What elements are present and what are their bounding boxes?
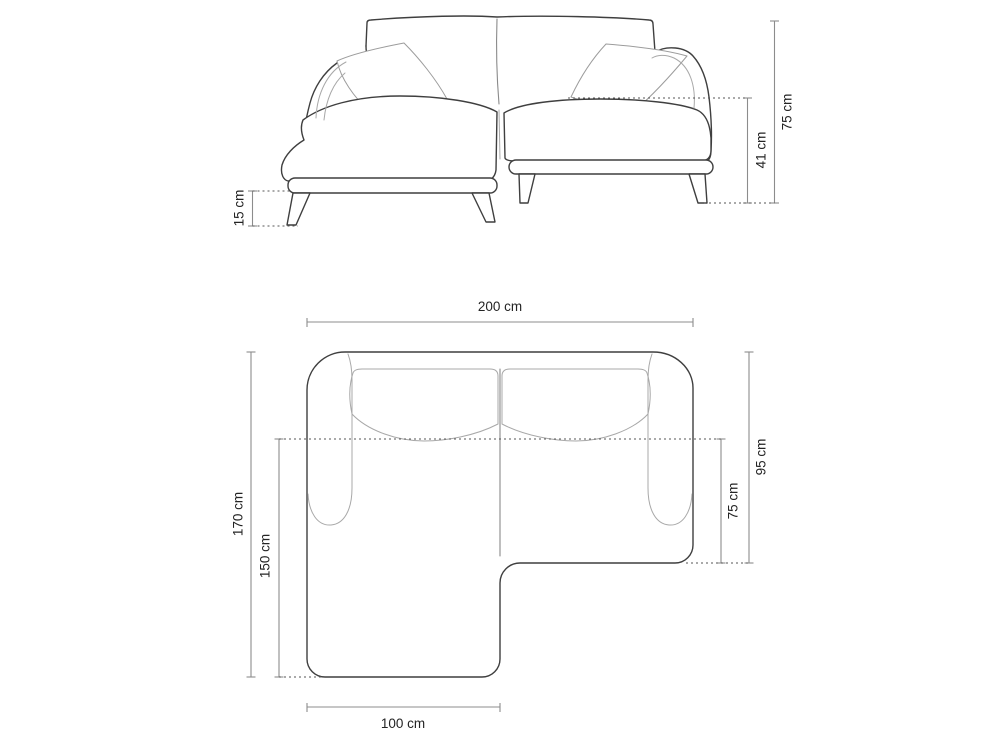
diagram-canvas: 75 cm 41 cm 15 cm 200 cm 100 cm <box>0 0 1000 750</box>
dim-label-right-depth: 95 cm <box>754 439 769 476</box>
dim-label-total-height: 75 cm <box>780 94 795 131</box>
chaise-seat-cushion <box>281 96 497 182</box>
dim-label-leg-height: 15 cm <box>232 190 247 227</box>
sofa-back-seam <box>497 19 499 104</box>
dim-label-seat-height: 41 cm <box>754 132 769 169</box>
sofa-dimension-diagram: 75 cm 41 cm 15 cm 200 cm 100 cm <box>0 0 1000 750</box>
front-leg-center-right <box>519 174 535 203</box>
dim-label-chaise-depth: 150 cm <box>258 534 273 578</box>
front-view: 75 cm 41 cm 15 cm <box>232 16 795 226</box>
right-seat-cushion <box>504 99 711 161</box>
dim-label-chaise-width: 100 cm <box>381 716 425 731</box>
front-leg-center-left <box>472 193 495 222</box>
base-rail-right <box>509 160 713 174</box>
front-leg-right <box>689 174 707 203</box>
top-view: 200 cm 100 cm 170 cm 150 cm 95 cm <box>231 299 769 731</box>
dim-label-total-width: 200 cm <box>478 299 522 314</box>
dim-label-total-depth: 170 cm <box>231 492 246 536</box>
front-leg-left <box>287 193 310 225</box>
base-rail-chaise <box>288 178 497 193</box>
seat-divider-crease <box>499 110 500 159</box>
dim-label-right-seat-depth: 75 cm <box>726 483 741 520</box>
